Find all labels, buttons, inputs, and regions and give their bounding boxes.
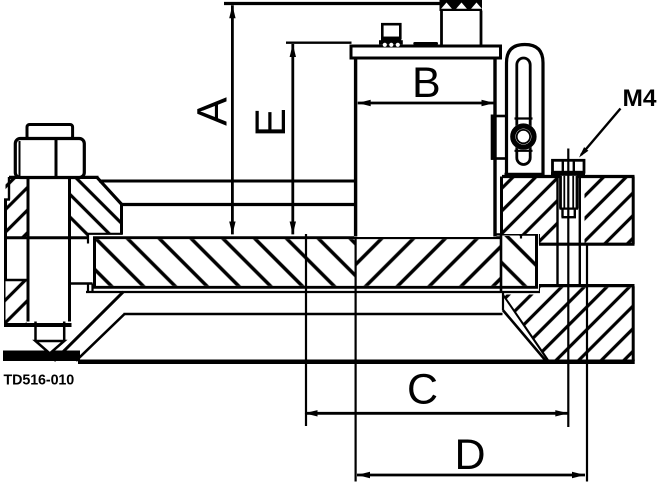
svg-text:M4: M4 bbox=[622, 85, 656, 112]
svg-text:D: D bbox=[454, 431, 485, 479]
svg-text:TD516-010: TD516-010 bbox=[4, 373, 75, 389]
svg-text:E: E bbox=[247, 108, 295, 137]
svg-text:A: A bbox=[189, 97, 237, 126]
svg-text:C: C bbox=[407, 365, 438, 413]
svg-text:B: B bbox=[412, 59, 441, 107]
